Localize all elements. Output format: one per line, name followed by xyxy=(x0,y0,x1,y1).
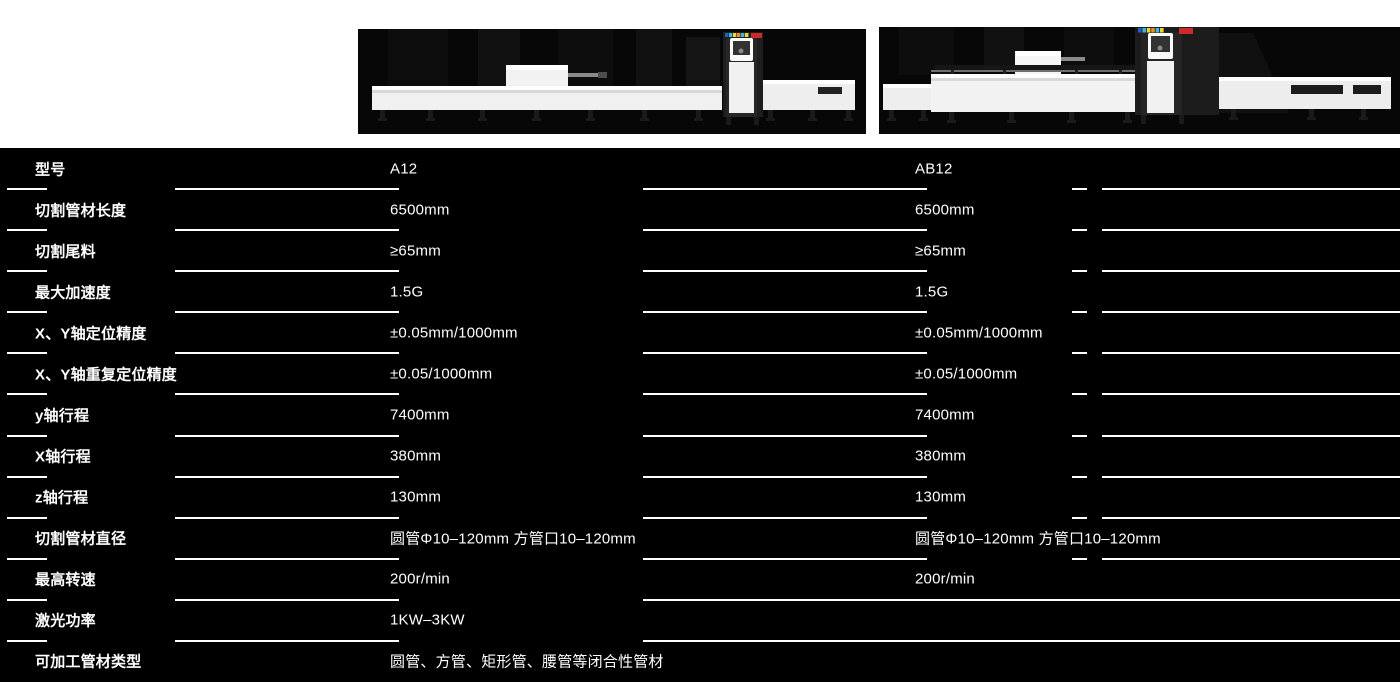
spec-value-ab12: 7400mm xyxy=(915,406,975,423)
row-divider xyxy=(0,599,1400,601)
spec-value-ab12: 130mm xyxy=(915,489,966,506)
spec-value-ab12: 200r/min xyxy=(915,571,975,588)
spec-table: 型号 A12 AB12 切割管材长度 6500mm 6500mm 切割尾料 ≥6… xyxy=(0,148,1400,682)
table-row: X、Y轴定位精度 ±0.05mm/1000mm ±0.05mm/1000mm xyxy=(0,312,1400,353)
table-row: 切割管材直径 圆管Φ10–120mm 方管口10–120mm 圆管Φ10–120… xyxy=(0,518,1400,559)
product-photo-a12 xyxy=(358,29,866,134)
spec-value-a12: 200r/min xyxy=(390,571,450,588)
spec-value-ab12: ±0.05/1000mm xyxy=(915,365,1017,382)
spec-value-a12: 圆管、方管、矩形管、腰管等闭合性管材 xyxy=(390,651,664,672)
spec-value-ab12: ≥65mm xyxy=(915,242,966,259)
spec-label: 切割管材长度 xyxy=(35,199,126,220)
row-divider xyxy=(0,311,1400,313)
row-divider xyxy=(0,435,1400,437)
spec-label: X、Y轴重复定位精度 xyxy=(35,363,177,384)
spec-label: 切割尾料 xyxy=(35,240,96,261)
laser-tube-cutter-a12-illustration xyxy=(358,29,866,134)
spec-value-a12: 130mm xyxy=(390,489,441,506)
brand-badge-icon xyxy=(751,33,762,38)
spec-value-ab12: AB12 xyxy=(915,160,953,177)
spec-label: X轴行程 xyxy=(35,446,91,467)
spec-label: 最高转速 xyxy=(35,569,96,590)
row-divider xyxy=(0,270,1400,272)
spec-value-a12: 1KW–3KW xyxy=(390,612,465,629)
spec-label: 型号 xyxy=(35,158,65,179)
table-row: 切割管材长度 6500mm 6500mm xyxy=(0,189,1400,230)
table-row: 可加工管材类型 圆管、方管、矩形管、腰管等闭合性管材 xyxy=(0,641,1400,682)
table-row: 最高转速 200r/min 200r/min xyxy=(0,559,1400,600)
spec-value-a12: ≥65mm xyxy=(390,242,441,259)
spec-value-ab12: 6500mm xyxy=(915,201,975,218)
laser-tube-cutter-ab12-illustration xyxy=(879,27,1400,134)
row-divider xyxy=(0,352,1400,354)
spec-label: X、Y轴定位精度 xyxy=(35,322,147,343)
table-row: 切割尾料 ≥65mm ≥65mm xyxy=(0,230,1400,271)
row-divider xyxy=(0,558,1400,560)
row-divider xyxy=(0,476,1400,478)
table-row: 激光功率 1KW–3KW xyxy=(0,600,1400,641)
spec-label: y轴行程 xyxy=(35,404,89,425)
spec-label: z轴行程 xyxy=(35,487,88,508)
table-row: 最大加速度 1.5G 1.5G xyxy=(0,271,1400,312)
product-spec-page: 型号 A12 AB12 切割管材长度 6500mm 6500mm 切割尾料 ≥6… xyxy=(0,0,1400,682)
row-divider xyxy=(0,640,1400,642)
spec-value-a12: ±0.05mm/1000mm xyxy=(390,324,518,341)
spec-value-ab12: 圆管Φ10–120mm 方管口10–120mm xyxy=(915,528,1161,549)
spec-value-a12: 圆管Φ10–120mm 方管口10–120mm xyxy=(390,528,636,549)
table-row: y轴行程 7400mm 7400mm xyxy=(0,394,1400,435)
spec-value-a12: 380mm xyxy=(390,448,441,465)
brand-badge-icon xyxy=(1179,28,1193,34)
row-divider xyxy=(0,229,1400,231)
spec-value-a12: 6500mm xyxy=(390,201,450,218)
spec-value-ab12: ±0.05mm/1000mm xyxy=(915,324,1043,341)
spec-label: 激光功率 xyxy=(35,610,96,631)
table-row-model: 型号 A12 AB12 xyxy=(0,148,1400,189)
table-row: X轴行程 380mm 380mm xyxy=(0,436,1400,477)
table-row: X、Y轴重复定位精度 ±0.05/1000mm ±0.05/1000mm xyxy=(0,353,1400,394)
product-photo-ab12 xyxy=(879,27,1400,134)
spec-value-a12: 1.5G xyxy=(390,283,423,300)
spec-value-ab12: 380mm xyxy=(915,448,966,465)
table-row: z轴行程 130mm 130mm xyxy=(0,477,1400,518)
spec-value-a12: A12 xyxy=(390,160,417,177)
row-divider xyxy=(0,393,1400,395)
spec-label: 切割管材直径 xyxy=(35,528,126,549)
row-divider xyxy=(0,188,1400,190)
row-divider xyxy=(0,517,1400,519)
spec-value-a12: 7400mm xyxy=(390,406,450,423)
hero-photos-band xyxy=(0,0,1400,148)
spec-label: 最大加速度 xyxy=(35,281,111,302)
spec-value-a12: ±0.05/1000mm xyxy=(390,365,492,382)
spec-value-ab12: 1.5G xyxy=(915,283,948,300)
spec-label: 可加工管材类型 xyxy=(35,651,141,672)
